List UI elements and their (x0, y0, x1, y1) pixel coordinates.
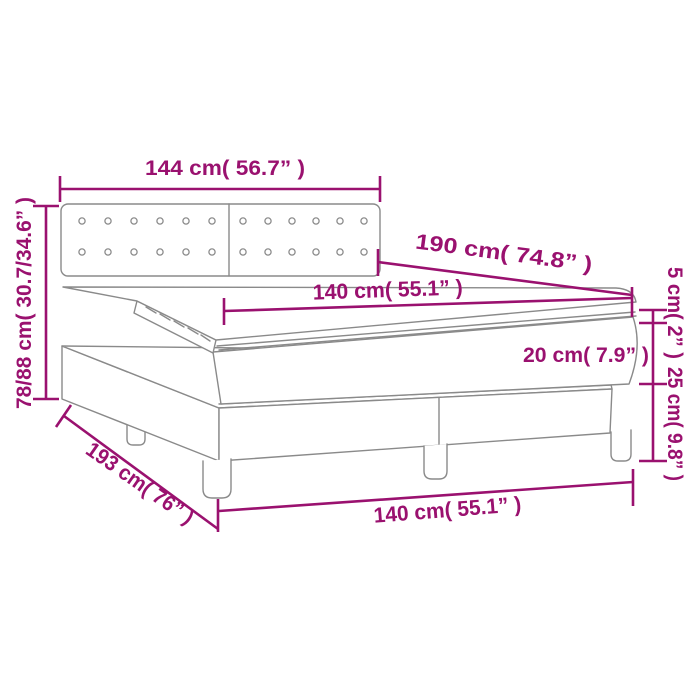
label-base-height: 25 cm( 9.8” ) (663, 367, 687, 481)
dimension-diagram: 144 cm( 56.7” ) 78/88 cm( 30.7/34.6” ) 1… (0, 0, 700, 700)
bed-leg-front-left (203, 459, 231, 498)
label-topper-thickness: 5 cm( 2” ) (663, 267, 687, 359)
headboard (61, 204, 380, 276)
bed-leg-front-middle (424, 444, 447, 479)
label-mattress-thickness: 20 cm( 7.9” ) (523, 343, 649, 367)
diagram-canvas: 144 cm( 56.7” ) 78/88 cm( 30.7/34.6” ) 1… (0, 0, 700, 700)
dim-total-height (33, 206, 59, 399)
label-bed-total-length: 193 cm( 76” ) (82, 437, 199, 529)
label-headboard-width: 144 cm( 56.7” ) (145, 156, 305, 180)
dim-height-bracket (639, 310, 667, 461)
label-total-height: 78/88 cm( 30.7/34.6” ) (12, 197, 36, 409)
bed-leg-front-right (611, 430, 631, 461)
